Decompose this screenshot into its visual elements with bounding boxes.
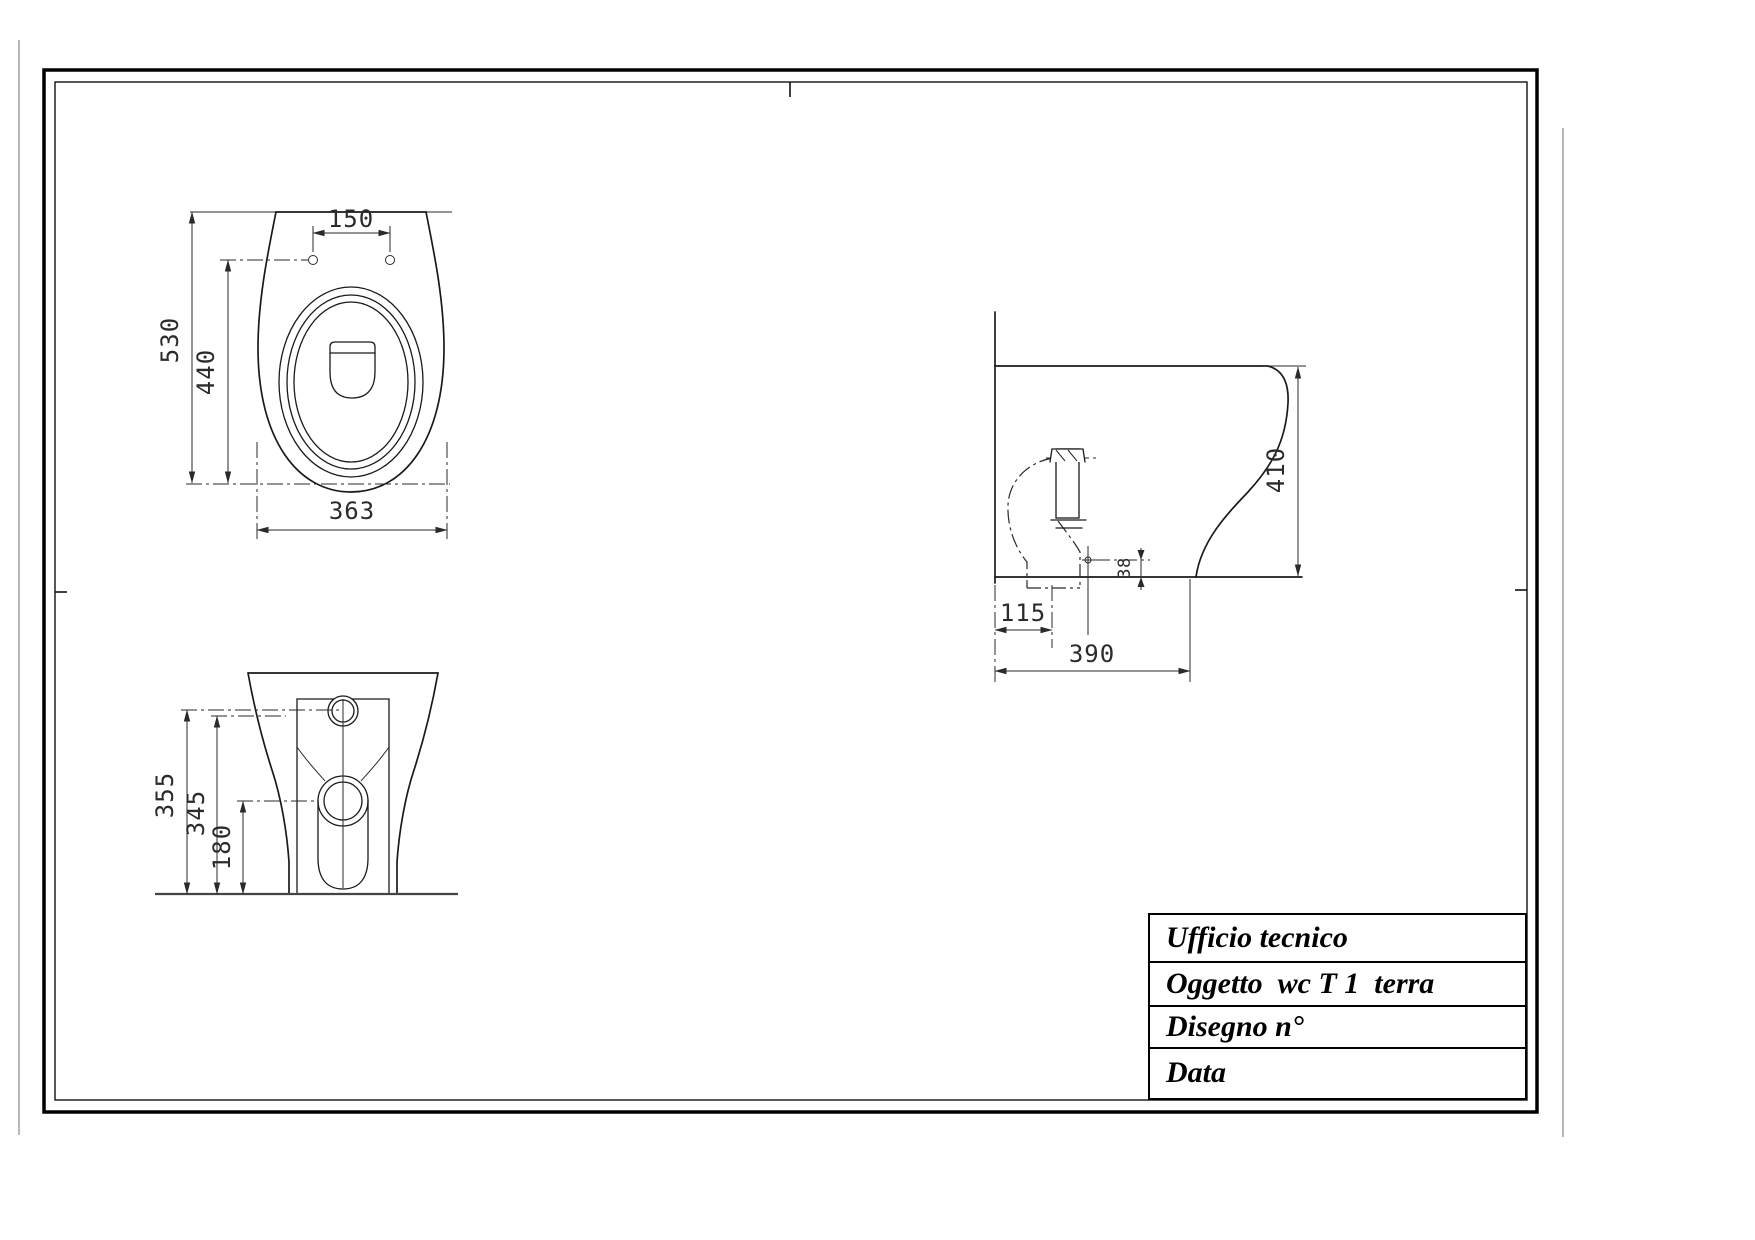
side-view: 38 410 115 390 (995, 312, 1306, 682)
dim-secondary-height: 345 (182, 790, 210, 836)
dim-overall-length: 530 (156, 317, 184, 363)
date-label: Data (1166, 1058, 1226, 1088)
plan-view: 150 530 440 363 (156, 205, 452, 540)
drawing-number-label: Disegno n° (1166, 1012, 1304, 1042)
dim-hole-spacing: 150 (328, 205, 374, 233)
dim-outlet-center-height: 38 (1115, 557, 1135, 578)
bolt-hole-right (386, 256, 395, 265)
dim-inlet-height: 355 (151, 772, 179, 818)
object-label: Oggetto wc T 1 terra (1166, 969, 1434, 999)
dim-holes-to-front: 440 (192, 349, 220, 395)
drawing-sheet: { "title_block": { "rows": [ {"label": "… (0, 0, 1755, 1240)
office-label: Ufficio tecnico (1166, 923, 1348, 953)
title-block: Ufficio tecnico Oggetto wc T 1 terra Dis… (1148, 913, 1527, 1100)
dim-overall-depth: 390 (1069, 640, 1115, 668)
bolt-hole-left (309, 256, 318, 265)
title-block-row-date: Data (1150, 1049, 1525, 1097)
rear-view: 355 345 180 (151, 673, 458, 894)
title-block-row-office: Ufficio tecnico (1150, 915, 1525, 963)
title-block-row-object: Oggetto wc T 1 terra (1150, 963, 1525, 1007)
dim-overall-width: 363 (329, 497, 375, 525)
dim-overall-height: 410 (1262, 447, 1290, 493)
dim-outlet-height: 180 (208, 824, 236, 870)
title-block-row-drawing-number: Disegno n° (1150, 1007, 1525, 1049)
dim-wall-to-trap: 115 (1000, 599, 1046, 627)
outlet-spigot (1050, 449, 1086, 528)
